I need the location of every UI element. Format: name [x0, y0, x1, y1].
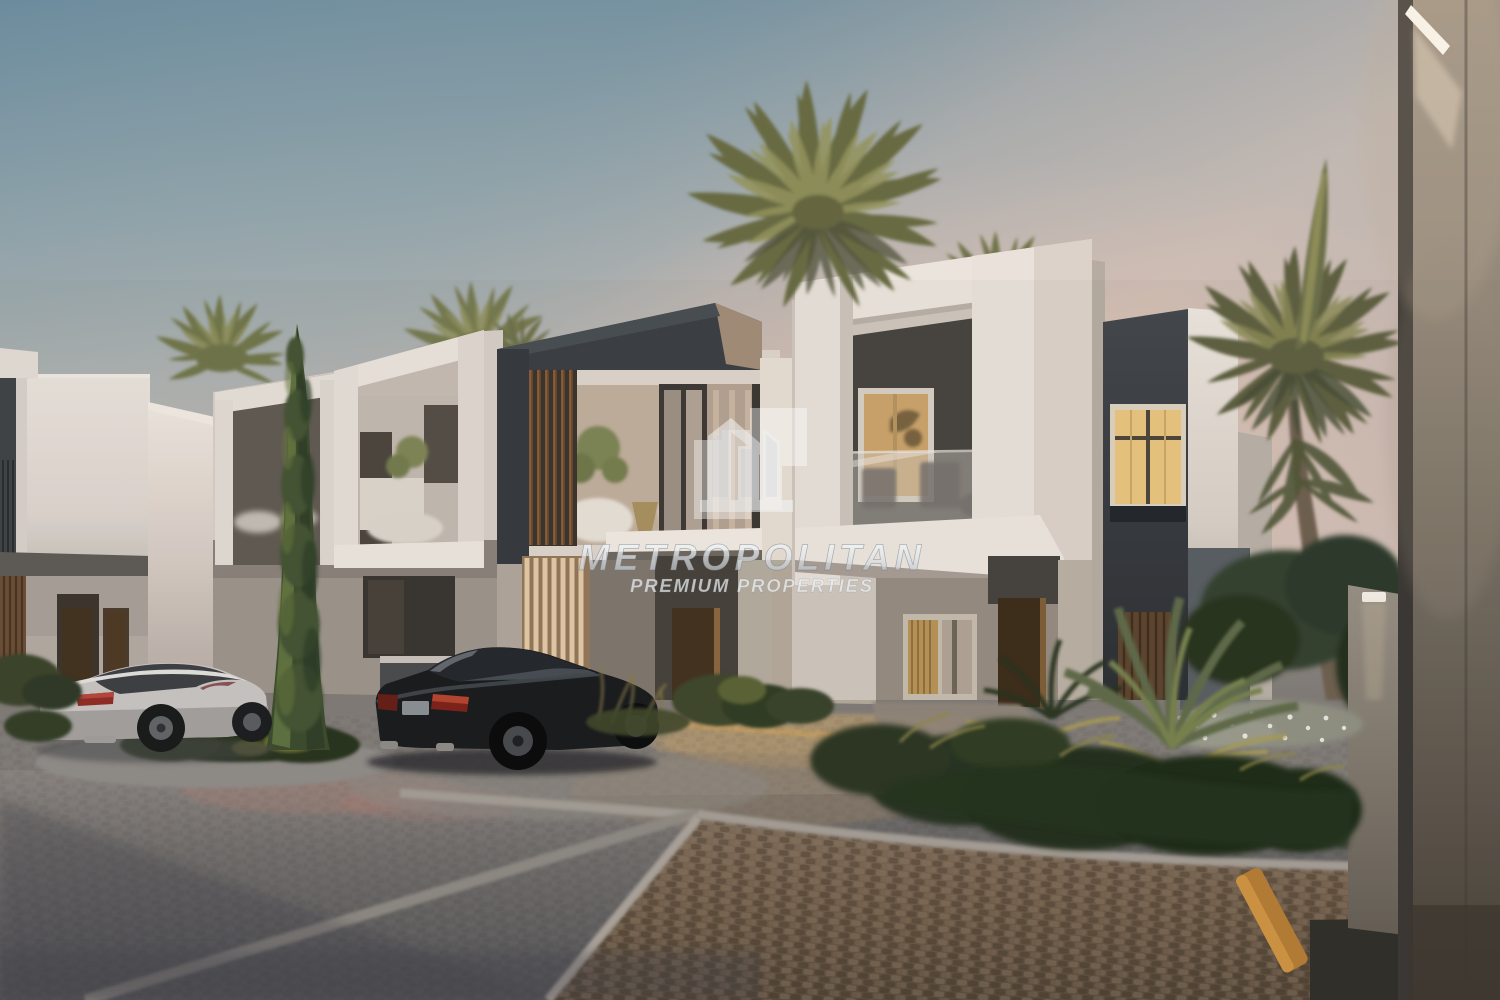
svg-text:METROPOLITAN: METROPOLITAN: [578, 537, 925, 578]
svg-text:PREMIUM PROPERTIES: PREMIUM PROPERTIES: [630, 575, 874, 596]
